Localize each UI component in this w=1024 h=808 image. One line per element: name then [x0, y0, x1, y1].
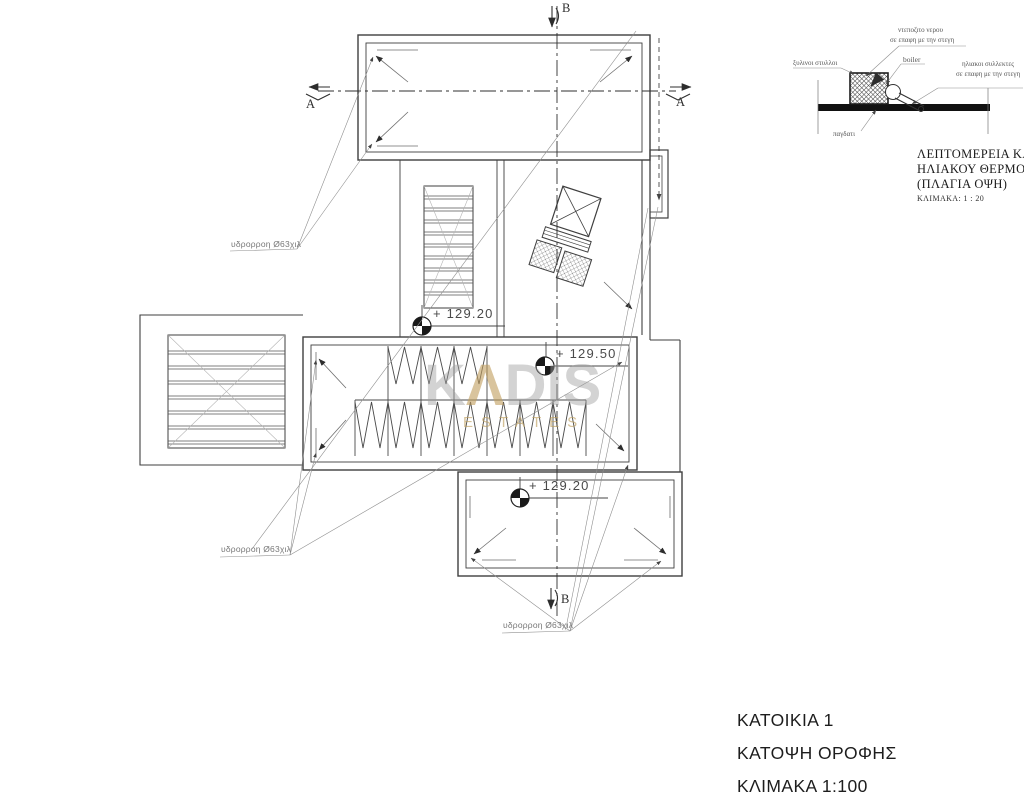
detail-title-line2: ΗΛΙΑΚΟΥ ΘΕΡΜΟΣΥΦΩ — [917, 162, 1024, 177]
detail-title-scale: ΚΛΙΜΑΚΑ: 1 : 20 — [917, 194, 984, 203]
level-text-3: + 129.20 — [529, 478, 590, 493]
downpipe-label-3: υδρορροη Ø63χιλ — [503, 620, 573, 630]
watermark-letter-k: K — [424, 353, 466, 418]
title-scale: ΚΛΙΜΑΚΑ 1:100 — [737, 776, 868, 797]
detail-label-collectors-line2: σε επαφη με την στεγη — [956, 70, 1020, 78]
section-label-b-top: B — [562, 1, 570, 16]
section-marker-icons — [306, 6, 691, 609]
detail-label-tank-line2: σε επαφη με την στεγη — [890, 36, 954, 44]
staircase — [424, 186, 473, 308]
water-tank — [850, 73, 888, 104]
title-house: ΚΑΤΟΙΚΙΑ 1 — [737, 710, 834, 731]
section-label-b-bottom: B — [561, 592, 569, 607]
watermark-estates: ESTATES — [463, 414, 585, 431]
detail-title-line3: (ΠΛΑΓΙΑ ΟΨΗ) — [917, 177, 1007, 192]
watermark-logo: KΛDIS — [424, 352, 601, 419]
detail-title-line1: ΛΕΠΤΟΜΕΡΕΙΑ ΚΑΛΥΨ — [917, 147, 1024, 162]
watermark-letter-a: Λ — [466, 353, 505, 418]
detail-label-boiler: boiler — [903, 55, 921, 64]
level-text-2: + 129.50 — [556, 346, 617, 361]
downpipe-leader-lines — [220, 31, 661, 633]
detail-label-collectors-line1: ηλιακοι συλλεκτες — [962, 60, 1014, 68]
downpipe-label-1: υδρορροη Ø63χιλ — [231, 239, 301, 249]
detail-label-posts: ξυλινοι στυλλοι — [793, 59, 837, 67]
watermark-letters-dis: DIS — [505, 353, 602, 418]
left-slatted-roof — [168, 335, 285, 448]
solar-heater-plan — [528, 184, 611, 287]
detail-label-tank-line1: ντεποζιτο νερου — [898, 26, 943, 34]
architectural-drawing-page: KΛDIS ESTATES υδρορροη Ø63χιλ υδρορροη Ø… — [0, 0, 1024, 808]
roof-slab-bar — [818, 104, 990, 111]
boiler-circle — [886, 85, 901, 100]
section-label-a-left: A — [306, 97, 315, 112]
title-drawing-name: ΚΑΤΟΨΗ ΟΡΟΦΗΣ — [737, 743, 897, 764]
detail-label-base: παγδατι — [833, 130, 855, 138]
corner-slope-marks — [316, 50, 670, 560]
roof-outline — [140, 35, 682, 576]
downpipe-label-2: υδρορροη Ø63χιλ — [221, 544, 291, 554]
level-text-1: + 129.20 — [433, 306, 494, 321]
section-label-a-right: A — [676, 95, 685, 110]
